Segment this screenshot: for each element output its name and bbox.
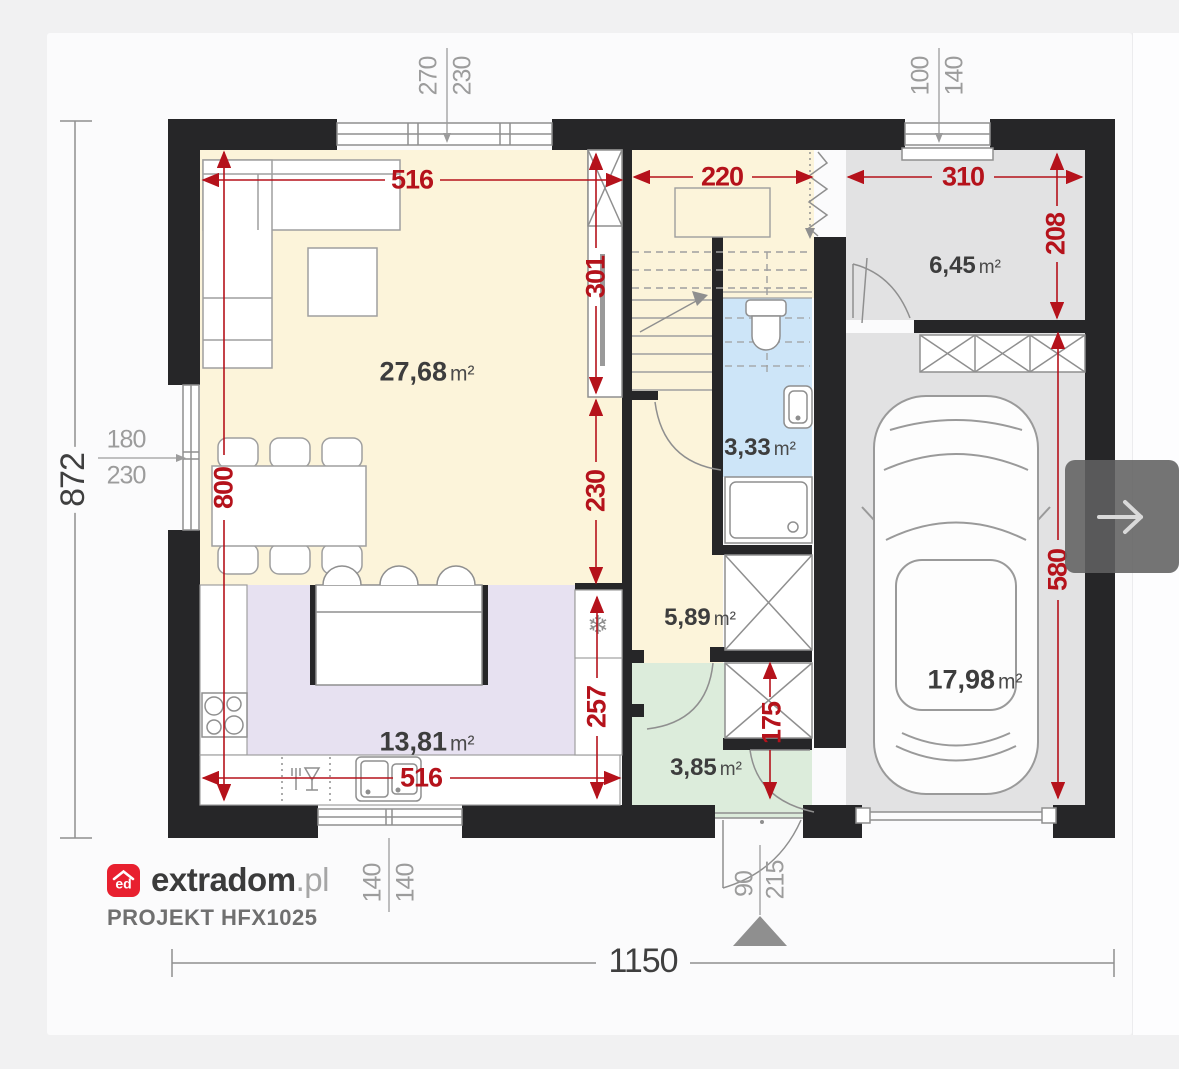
extradom-logo[interactable]: ed extradom.pl bbox=[107, 861, 329, 899]
dim-left-window-w: 180 bbox=[107, 428, 146, 453]
dim-left-window-h: 230 bbox=[107, 464, 146, 489]
wall-utility-bottom bbox=[914, 320, 1085, 333]
wall-garage-left bbox=[814, 237, 846, 748]
room-label-utility: 6,45m² bbox=[929, 254, 1001, 278]
brand-name: extradom.pl bbox=[151, 861, 329, 899]
dim-stair-width: 220 bbox=[701, 164, 743, 191]
wall-left-upper bbox=[168, 119, 200, 385]
wall-hall-top-stub bbox=[622, 391, 658, 400]
wall-stair-bath bbox=[712, 237, 723, 545]
dim-utility-window-w: 100 bbox=[909, 57, 934, 96]
svg-text:ed: ed bbox=[115, 875, 131, 891]
dim-living-depth: 800 bbox=[211, 467, 238, 509]
wall-hall-entry bbox=[710, 647, 812, 662]
project-code: PROJEKT HFX1025 bbox=[107, 905, 317, 931]
wall-shower-bottom bbox=[712, 545, 812, 555]
wall-top-mid bbox=[552, 119, 905, 150]
dim-utility-window-h: 140 bbox=[943, 57, 968, 96]
dim-utility-depth: 208 bbox=[1043, 213, 1070, 255]
room-label-kitchen: 13,81m² bbox=[379, 729, 474, 756]
dim-hall-depth: 230 bbox=[583, 470, 610, 512]
room-label-bathroom: 3,33m² bbox=[724, 436, 796, 460]
wall-entry-jamb-2 bbox=[632, 704, 644, 717]
dim-total-depth: 872 bbox=[56, 447, 90, 513]
dim-utility-width: 310 bbox=[942, 164, 984, 191]
dim-kitchen-depth: 257 bbox=[584, 686, 611, 728]
arrow-right-icon bbox=[1091, 495, 1153, 539]
dim-kitchen-window-w: 140 bbox=[361, 864, 386, 903]
dim-kitchen-window-h: 140 bbox=[394, 864, 419, 903]
room-label-hall: 5,89m² bbox=[664, 606, 736, 630]
dim-entry-door-w: 90 bbox=[733, 871, 758, 897]
dim-top-window-w: 270 bbox=[417, 57, 442, 96]
dim-living-width: 516 bbox=[391, 167, 433, 194]
island-edge-right bbox=[481, 585, 488, 685]
extradom-logo-icon: ed bbox=[107, 864, 140, 897]
dim-stair-wall: 301 bbox=[583, 256, 610, 298]
dim-total-width: 1150 bbox=[602, 944, 683, 978]
carousel-next-button[interactable] bbox=[1065, 460, 1179, 573]
dim-kitchen-width: 516 bbox=[400, 765, 442, 792]
dim-top-window-h: 230 bbox=[451, 57, 476, 96]
wall-hall-left bbox=[622, 400, 632, 805]
room-label-entry: 3,85m² bbox=[670, 756, 742, 780]
island-edge-left bbox=[310, 585, 317, 685]
dim-entry-door-h: 215 bbox=[764, 861, 789, 900]
wall-left-lower bbox=[168, 530, 200, 838]
wall-garage-left-low bbox=[814, 812, 846, 838]
wall-stair-column-upper bbox=[622, 150, 632, 391]
wall-bottom-1 bbox=[168, 805, 318, 838]
room-label-living: 27,68m² bbox=[379, 359, 474, 386]
room-label-garage: 17,98m² bbox=[927, 667, 1022, 694]
wall-freezer-stub bbox=[575, 583, 622, 590]
room-entry-threshold bbox=[715, 805, 803, 818]
wall-entry-jamb-1 bbox=[632, 650, 644, 663]
wall-bottom-4 bbox=[1053, 805, 1115, 838]
dim-entry-depth: 175 bbox=[759, 702, 786, 744]
wall-bottom-2 bbox=[462, 805, 715, 838]
